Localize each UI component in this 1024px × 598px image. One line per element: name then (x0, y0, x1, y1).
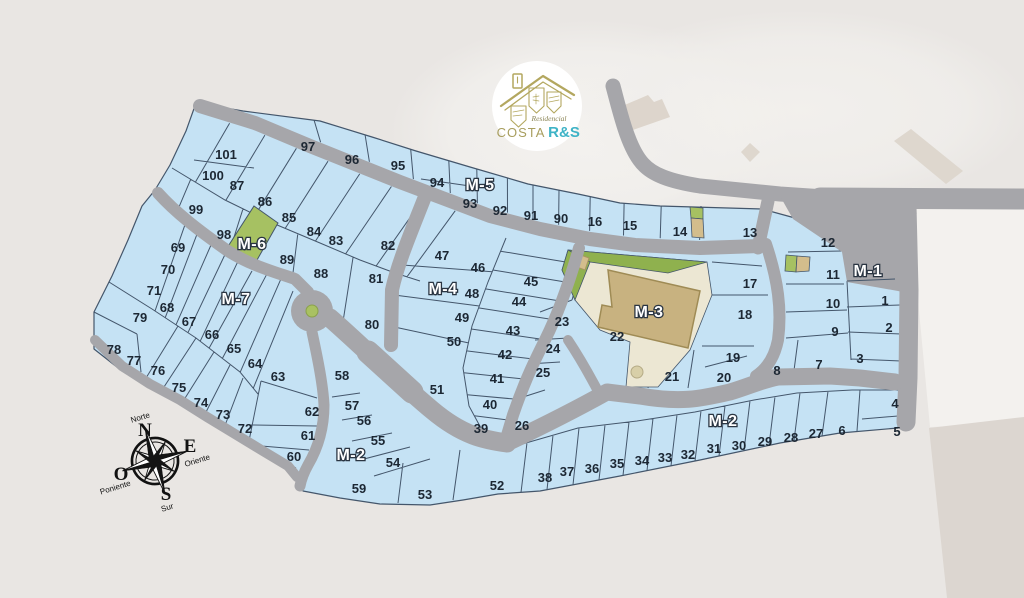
svg-text:92: 92 (493, 203, 507, 218)
svg-text:25: 25 (536, 365, 550, 380)
svg-text:16: 16 (588, 214, 602, 229)
svg-text:40: 40 (483, 397, 497, 412)
svg-text:55: 55 (371, 433, 385, 448)
svg-text:37: 37 (560, 464, 574, 479)
svg-text:48: 48 (465, 286, 479, 301)
svg-text:36: 36 (585, 461, 599, 476)
svg-text:35: 35 (610, 456, 624, 471)
svg-text:M-7: M-7 (221, 291, 250, 308)
svg-text:97: 97 (301, 139, 315, 154)
svg-text:93: 93 (463, 196, 477, 211)
svg-text:19: 19 (726, 350, 740, 365)
svg-text:71: 71 (147, 283, 161, 298)
svg-text:18: 18 (738, 307, 752, 322)
svg-text:28: 28 (784, 430, 798, 445)
svg-text:84: 84 (307, 224, 322, 239)
svg-text:53: 53 (418, 487, 432, 502)
svg-text:86: 86 (258, 194, 272, 209)
svg-text:58: 58 (335, 368, 349, 383)
svg-text:78: 78 (107, 342, 121, 357)
svg-text:94: 94 (430, 175, 445, 190)
svg-text:M-6: M-6 (237, 236, 266, 253)
svg-text:42: 42 (498, 347, 512, 362)
svg-text:M-4: M-4 (428, 281, 457, 298)
svg-text:74: 74 (194, 395, 209, 410)
svg-text:77: 77 (127, 353, 141, 368)
svg-text:49: 49 (455, 310, 469, 325)
svg-text:7: 7 (815, 357, 822, 372)
svg-text:14: 14 (673, 224, 688, 239)
svg-text:56: 56 (357, 413, 371, 428)
svg-text:M-2: M-2 (336, 447, 365, 464)
svg-text:90: 90 (554, 211, 568, 226)
svg-text:54: 54 (386, 455, 401, 470)
svg-text:13: 13 (743, 225, 757, 240)
svg-text:44: 44 (512, 294, 527, 309)
svg-text:34: 34 (635, 453, 650, 468)
svg-text:27: 27 (809, 426, 823, 441)
svg-text:12: 12 (821, 235, 835, 250)
svg-text:6: 6 (838, 423, 845, 438)
svg-text:24: 24 (546, 341, 561, 356)
svg-text:67: 67 (182, 314, 196, 329)
svg-text:15: 15 (623, 218, 637, 233)
svg-text:96: 96 (345, 152, 359, 167)
svg-text:76: 76 (151, 363, 165, 378)
svg-text:31: 31 (707, 441, 721, 456)
svg-text:39: 39 (474, 421, 488, 436)
svg-text:72: 72 (238, 421, 252, 436)
svg-text:5: 5 (893, 424, 900, 439)
svg-text:69: 69 (171, 240, 185, 255)
svg-text:85: 85 (282, 210, 296, 225)
svg-text:COSTA: COSTA (497, 125, 546, 140)
svg-text:57: 57 (345, 398, 359, 413)
svg-text:70: 70 (161, 262, 175, 277)
svg-text:32: 32 (681, 447, 695, 462)
svg-text:M-2: M-2 (708, 413, 737, 430)
svg-text:59: 59 (352, 481, 366, 496)
svg-text:47: 47 (435, 248, 449, 263)
svg-text:88: 88 (314, 266, 328, 281)
svg-text:63: 63 (271, 369, 285, 384)
svg-text:83: 83 (329, 233, 343, 248)
svg-text:82: 82 (381, 238, 395, 253)
svg-text:46: 46 (471, 260, 485, 275)
svg-text:9: 9 (831, 324, 838, 339)
svg-text:38: 38 (538, 470, 552, 485)
svg-text:1: 1 (881, 293, 888, 308)
svg-text:M-3: M-3 (634, 304, 663, 321)
svg-text:91: 91 (524, 208, 538, 223)
svg-text:68: 68 (160, 300, 174, 315)
svg-text:64: 64 (248, 356, 263, 371)
svg-text:10: 10 (826, 296, 840, 311)
svg-text:41: 41 (490, 371, 504, 386)
svg-text:21: 21 (665, 369, 679, 384)
svg-text:M-1: M-1 (853, 263, 882, 280)
svg-text:50: 50 (447, 334, 461, 349)
svg-text:26: 26 (515, 418, 529, 433)
svg-text:N: N (138, 420, 152, 441)
svg-text:79: 79 (133, 310, 147, 325)
svg-text:81: 81 (369, 271, 383, 286)
svg-text:4: 4 (891, 396, 899, 411)
svg-text:98: 98 (217, 227, 231, 242)
svg-text:89: 89 (280, 252, 294, 267)
svg-text:E: E (184, 436, 197, 457)
svg-text:30: 30 (732, 438, 746, 453)
svg-text:M-5: M-5 (465, 177, 494, 194)
svg-text:17: 17 (743, 276, 757, 291)
svg-text:23: 23 (555, 314, 569, 329)
svg-text:52: 52 (490, 478, 504, 493)
svg-text:51: 51 (430, 382, 444, 397)
svg-text:43: 43 (506, 323, 520, 338)
svg-text:Residencial: Residencial (531, 114, 567, 123)
svg-text:80: 80 (365, 317, 379, 332)
svg-text:20: 20 (717, 370, 731, 385)
svg-text:61: 61 (301, 428, 315, 443)
svg-text:3: 3 (856, 351, 863, 366)
svg-text:33: 33 (658, 450, 672, 465)
svg-text:73: 73 (216, 407, 230, 422)
svg-text:75: 75 (172, 380, 186, 395)
svg-text:100: 100 (202, 168, 224, 183)
svg-text:2: 2 (885, 320, 892, 335)
svg-text:60: 60 (287, 449, 301, 464)
svg-text:8: 8 (773, 363, 780, 378)
svg-text:29: 29 (758, 434, 772, 449)
svg-text:95: 95 (391, 158, 405, 173)
svg-text:87: 87 (230, 178, 244, 193)
svg-text:R&S: R&S (548, 124, 580, 141)
svg-text:62: 62 (305, 404, 319, 419)
svg-text:11: 11 (826, 267, 840, 282)
svg-text:101: 101 (215, 147, 237, 162)
svg-text:22: 22 (610, 329, 624, 344)
svg-text:66: 66 (205, 327, 219, 342)
svg-text:99: 99 (189, 202, 203, 217)
svg-text:65: 65 (227, 341, 241, 356)
svg-text:45: 45 (524, 274, 538, 289)
